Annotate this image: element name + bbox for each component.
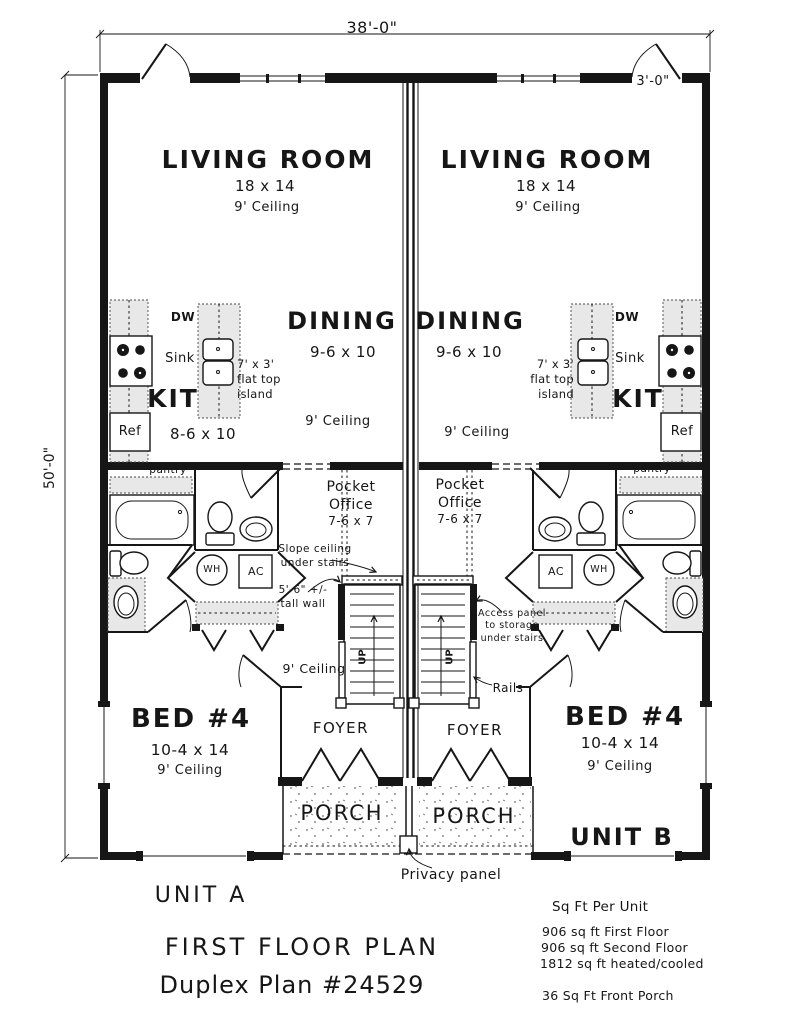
room-ceiling-dining-b: 9' Ceiling (444, 425, 509, 442)
pantry-a (110, 477, 192, 493)
pantry-label-b: pantry (633, 463, 670, 477)
window (233, 73, 332, 83)
pocket-office-size-b: 7-6 x 7 (437, 512, 482, 528)
pocket-office-label-b: Pocket (436, 476, 485, 494)
pantry-label-a: pantry (149, 464, 186, 478)
note-privacy-panel: Privacy panel (401, 866, 501, 884)
room-label-living-a: LIVING ROOM (162, 144, 375, 177)
sqft-total: 1812 sq ft heated/cooled (540, 956, 704, 972)
bathtub-a (110, 495, 194, 545)
french-doors-b (432, 749, 510, 781)
toilet-b1 (577, 533, 605, 545)
foyer-label-a: FOYER (313, 719, 369, 739)
stairs-a (336, 576, 404, 708)
room-ceiling-bed-a: 9' Ceiling (157, 763, 222, 780)
pocket-office-size-a: 7-6 x 7 (328, 514, 373, 530)
bifold-door (587, 630, 611, 650)
bathtub-b (617, 495, 701, 545)
note-rails: Rails (493, 681, 524, 697)
ref-label-a: Ref (119, 424, 142, 441)
island-label-a: 7' x 3' flat top island (237, 357, 281, 402)
room-ceiling-living-a: 9' Ceiling (234, 200, 299, 217)
dim-overall-width: 38'-0" (346, 18, 397, 39)
interior-walls (108, 462, 702, 470)
dim-overall-depth: 50'-0" (42, 447, 58, 489)
room-label-bed-b: BED #4 (565, 701, 685, 735)
room-size-dining-b: 9-6 x 10 (436, 343, 502, 363)
plan-title: FIRST FLOOR PLAN (165, 932, 439, 963)
ref-label-b: Ref (671, 424, 694, 441)
water-heater-label-a: WH (203, 564, 221, 576)
bifold-door (202, 630, 226, 650)
porch-label-b: PORCH (432, 803, 515, 830)
rear-door-a (142, 44, 190, 79)
room-size-kitchen-a: 8-6 x 10 (170, 425, 236, 445)
room-label-kitchen-a: KIT (147, 383, 199, 416)
room-label-living-b: LIVING ROOM (441, 144, 654, 177)
island-label-b: 7' x 3' flat top island (517, 357, 574, 402)
room-ceiling-living-b: 9' Ceiling (515, 200, 580, 217)
room-label-dining-a: DINING (287, 306, 397, 337)
water-heater-label-b: WH (590, 564, 608, 576)
sqft-porch: 36 Sq Ft Front Porch (542, 988, 674, 1004)
hall-ceiling-a: 9' Ceiling (282, 661, 345, 677)
room-size-bed-b: 10-4 x 14 (581, 733, 659, 753)
room-size-living-a: 18 x 14 (235, 177, 295, 197)
pantry-b (620, 477, 702, 493)
porch-label-a: PORCH (300, 800, 383, 827)
note-tall-wall: 5'-6" +/- tall wall (279, 584, 328, 611)
lav-sink-b2 (673, 586, 697, 618)
room-label-dining-b: DINING (415, 306, 525, 337)
room-label-kitchen-b: KIT (612, 383, 664, 416)
ac-label-b: AC (548, 565, 564, 579)
window (490, 73, 587, 83)
sqft-second-floor: 906 sq ft Second Floor (541, 940, 688, 956)
ac-label-a: AC (248, 565, 264, 579)
unit-a-title: UNIT A (155, 882, 248, 911)
room-size-dining-a: 9-6 x 10 (310, 343, 376, 363)
closet-a (192, 602, 284, 650)
plan-number: Duplex Plan #24529 (160, 970, 425, 1001)
dim-entry-offset: 3'-0" (636, 74, 669, 91)
pocket-office-label2-b: Office (438, 494, 482, 512)
note-access-panel: Access panel to storage under stairs (478, 608, 546, 645)
floor-plan-sheet: 38'-0" 3'-0" 50'-0" LIVING ROOM 18 x 14 … (0, 0, 791, 1024)
room-size-living-b: 18 x 14 (516, 177, 576, 197)
unit-b-label: UNIT B (570, 822, 674, 853)
window (700, 701, 712, 789)
up-label-a: UP (358, 649, 369, 664)
bed-door-a (243, 655, 281, 687)
room-ceiling-dining-a: 9' Ceiling (305, 414, 370, 431)
sqft-heading: Sq Ft Per Unit (552, 899, 648, 917)
sink-label-b: Sink (615, 351, 645, 368)
floor-plan-drawing (0, 0, 791, 1024)
window (98, 701, 110, 789)
foyer-label-b: FOYER (447, 721, 503, 741)
room-size-bed-a: 10-4 x 14 (151, 740, 229, 760)
stairs-b (409, 576, 479, 708)
room-ceiling-bed-b: 9' Ceiling (587, 759, 652, 776)
bifold-door (250, 630, 274, 650)
room-label-bed-a: BED #4 (131, 703, 251, 737)
bed-door-b (530, 655, 568, 687)
up-label-b: UP (445, 649, 456, 664)
window (136, 851, 254, 861)
privacy-panel-post (400, 836, 417, 853)
sink-b (578, 339, 608, 360)
sqft-first-floor: 906 sq ft First Floor (542, 924, 669, 940)
stove-a (110, 336, 152, 386)
pocket-office-label2-a: Office (329, 496, 373, 514)
stove-b (659, 336, 701, 386)
toilet-a1 (206, 533, 234, 545)
sink-a (203, 339, 233, 360)
note-slope-ceiling: Slope ceiling under stairs (278, 543, 351, 570)
dishwasher-label-a: DW (171, 310, 195, 326)
pocket-office-label-a: Pocket (327, 478, 376, 496)
dishwasher-label-b: DW (615, 310, 639, 326)
french-doors-a (302, 749, 380, 781)
lav-sink-a2 (114, 586, 138, 618)
sink-label-a: Sink (165, 351, 195, 368)
